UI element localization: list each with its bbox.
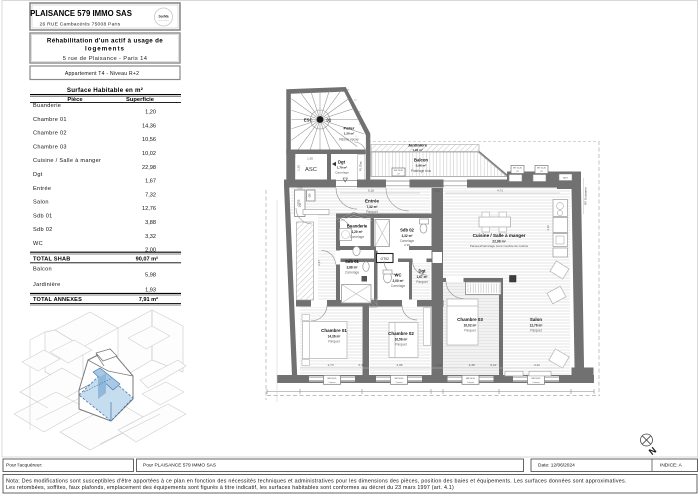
svg-text:3,11: 3,11: [534, 363, 540, 367]
svg-text:10,56: 10,56: [142, 137, 156, 143]
svg-text:Appartement T4 - Niveau R+2: Appartement T4 - Niveau R+2: [65, 71, 139, 77]
svg-text:SeeMa: SeeMa: [158, 15, 168, 19]
svg-text:Pour l'acquéreur:: Pour l'acquéreur:: [6, 463, 42, 469]
svg-text:2,73: 2,73: [328, 363, 334, 367]
svg-text:1,20 m²: 1,20 m²: [352, 230, 363, 234]
svg-text:Chambre 02: Chambre 02: [388, 331, 414, 336]
svg-text:Carrelage: Carrelage: [335, 171, 349, 175]
svg-text:Salon: Salon: [530, 317, 543, 322]
svg-text:12,76 m²: 12,76 m²: [530, 324, 543, 328]
svg-text:logements: logements: [85, 46, 125, 53]
svg-text:4,71: 4,71: [497, 189, 503, 193]
svg-text:Dgt: Dgt: [338, 160, 346, 165]
svg-text:1,67: 1,67: [145, 179, 156, 185]
svg-text:3,47: 3,47: [317, 260, 321, 266]
svg-text:10,56 m²: 10,56 m²: [395, 338, 408, 342]
svg-text:2,00 m²: 2,00 m²: [393, 279, 404, 283]
svg-text:Salon: Salon: [33, 200, 49, 206]
svg-text:RF Existante: RF Existante: [584, 187, 588, 205]
svg-text:Parquet/Carrelage sous meuble: Parquet/Carrelage sous meuble de cuisine: [470, 244, 529, 248]
svg-text:7,91 m²: 7,91 m²: [139, 296, 158, 303]
svg-text:1,93 m²: 1,93 m²: [412, 148, 422, 152]
svg-text:0,31: 0,31: [434, 189, 440, 193]
svg-text:Sdb 02: Sdb 02: [33, 227, 53, 233]
svg-text:14,36: 14,36: [142, 123, 156, 129]
svg-text:Créneau: Créneau: [396, 382, 403, 384]
svg-text:MR 50-95: MR 50-95: [532, 378, 542, 380]
svg-text:5,98: 5,98: [145, 273, 156, 279]
svg-text:0,10: 0,10: [358, 363, 364, 367]
svg-text:Dgt: Dgt: [419, 269, 427, 274]
svg-text:Carrelage: Carrelage: [350, 235, 365, 239]
svg-text:Carrelage: Carrelage: [391, 284, 406, 288]
svg-text:Chambre 01: Chambre 01: [33, 117, 67, 123]
svg-text:0,36: 0,36: [298, 186, 303, 189]
svg-text:90,07 m²: 90,07 m²: [136, 256, 159, 263]
svg-text:01: 01: [327, 117, 332, 122]
svg-text:Les retombées, soffites, faux: Les retombées, soffites, faux plafonds, …: [6, 485, 454, 491]
svg-text:Parquet: Parquet: [395, 343, 407, 347]
svg-text:1,79 m²: 1,79 m²: [337, 166, 347, 170]
svg-text:Parquet: Parquet: [530, 329, 542, 333]
svg-text:MV 15-35: MV 15-35: [513, 168, 523, 170]
svg-text:Créneau: Créneau: [533, 382, 540, 384]
svg-text:5,18: 5,18: [368, 189, 374, 193]
svg-text:WC: WC: [395, 273, 402, 278]
svg-text:1,30: 1,30: [307, 157, 313, 161]
svg-text:MV 15-35: MV 15-35: [394, 170, 404, 172]
svg-text:Réhabilitation d'un actif à us: Réhabilitation d'un actif à usage de: [47, 38, 163, 45]
svg-text:22,98 m²: 22,98 m²: [492, 240, 506, 244]
svg-text:2,36: 2,36: [404, 243, 410, 247]
svg-text:3,32 m²: 3,32 m²: [402, 234, 413, 238]
svg-text:1,20 m²: 1,20 m²: [344, 132, 355, 136]
svg-text:ESC: ESC: [304, 117, 313, 122]
svg-text:3,32: 3,32: [145, 234, 156, 240]
svg-text:Chambre 02: Chambre 02: [33, 131, 67, 137]
svg-text:Entrée: Entrée: [33, 186, 51, 192]
svg-text:Cuisine / Salle à manger: Cuisine / Salle à manger: [33, 158, 101, 164]
svg-text:0,10: 0,10: [490, 363, 496, 367]
svg-text:Date: 12/06/2024: Date: 12/06/2024: [538, 463, 575, 469]
svg-text:26 RUE Cambacérès 75008 Paris: 26 RUE Cambacérès 75008 Paris: [40, 22, 121, 28]
svg-text:MV 15-35: MV 15-35: [537, 168, 547, 170]
svg-text:WC: WC: [33, 241, 43, 247]
svg-text:Parquet: Parquet: [464, 329, 476, 333]
svg-text:2,38: 2,38: [469, 363, 475, 367]
svg-text:Surface Habitable en m²: Surface Habitable en m²: [67, 87, 143, 94]
svg-text:Nota: Des modifications sont s: Nota: Des modifications sont susceptible…: [6, 479, 627, 485]
svg-text:2,96: 2,96: [396, 363, 402, 367]
svg-text:MR 50-95: MR 50-95: [328, 378, 338, 380]
svg-text:Résine époxy: Résine époxy: [339, 138, 359, 142]
svg-text:Parquet: Parquet: [366, 210, 378, 214]
svg-text:12,76: 12,76: [142, 206, 156, 212]
svg-text:4,12: 4,12: [546, 225, 550, 231]
svg-text:Cuisine / Salle à manger: Cuisine / Salle à manger: [473, 233, 526, 238]
svg-text:0,48: 0,48: [436, 363, 442, 367]
svg-text:PL Élec: PL Élec: [358, 161, 363, 171]
svg-text:7,32: 7,32: [145, 192, 156, 198]
svg-text:10,02 m²: 10,02 m²: [464, 324, 477, 328]
svg-text:Sdb 02: Sdb 02: [400, 228, 414, 233]
svg-text:1,20: 1,20: [145, 110, 156, 116]
svg-text:AGG: AGG: [563, 177, 568, 180]
svg-text:PLAISANCE 579 IMMO SAS: PLAISANCE 579 IMMO SAS: [30, 9, 132, 18]
svg-text:ASC: ASC: [305, 167, 317, 173]
svg-text:Buanderie: Buanderie: [33, 103, 61, 109]
svg-text:MR 50-95: MR 50-95: [395, 378, 405, 380]
svg-text:MR 50-95: MR 50-95: [466, 378, 476, 380]
svg-text:1,31: 1,31: [298, 202, 302, 208]
svg-text:Balcon: Balcon: [33, 267, 52, 273]
svg-text:Chambre 03: Chambre 03: [457, 317, 483, 322]
svg-text:Entrée: Entrée: [365, 199, 380, 204]
svg-text:Sdb 01: Sdb 01: [345, 259, 359, 264]
svg-text:10,02: 10,02: [142, 151, 156, 157]
svg-text:3,88 m²: 3,88 m²: [347, 266, 358, 270]
svg-text:GR: GR: [308, 193, 312, 197]
svg-text:Pour PLAISANCE 579 IMMO SAS: Pour PLAISANCE 579 IMMO SAS: [143, 463, 216, 469]
svg-text:Jardinière: Jardinière: [33, 282, 61, 288]
svg-text:Dgt: Dgt: [33, 172, 43, 178]
svg-text:Carrelage: Carrelage: [345, 271, 360, 275]
svg-text:Pièce: Pièce: [67, 97, 83, 103]
svg-text:Créneau: Créneau: [467, 382, 474, 384]
svg-text:INDICE: A: INDICE: A: [660, 463, 683, 469]
svg-text:TOTAL SHAB: TOTAL SHAB: [33, 257, 70, 263]
svg-text:Superficie: Superficie: [126, 97, 155, 103]
svg-text:22,98: 22,98: [142, 165, 156, 171]
svg-text:1,20: 1,20: [297, 165, 301, 171]
svg-text:Parquet: Parquet: [416, 280, 428, 284]
svg-text:Sdb 01: Sdb 01: [33, 213, 53, 219]
svg-text:Balcon: Balcon: [414, 158, 428, 163]
svg-text:Parquet: Parquet: [328, 340, 340, 344]
svg-text:Palier: Palier: [344, 126, 355, 131]
svg-text:14,36 m²: 14,36 m²: [328, 335, 341, 339]
svg-text:5,98 m²: 5,98 m²: [416, 164, 427, 168]
svg-text:GT02: GT02: [380, 257, 389, 261]
svg-text:Créneau: Créneau: [329, 382, 336, 384]
svg-text:Buanderie: Buanderie: [347, 224, 368, 229]
svg-text:Chambre 01: Chambre 01: [321, 328, 347, 333]
svg-text:TOTAL ANNEXES: TOTAL ANNEXES: [33, 297, 82, 303]
svg-text:Platelage bois: Platelage bois: [411, 169, 431, 173]
svg-text:Chambre 03: Chambre 03: [33, 144, 67, 150]
svg-text:7,32 m²: 7,32 m²: [367, 205, 378, 209]
svg-text:5 rue de Plaisance - Paris 14: 5 rue de Plaisance - Paris 14: [63, 56, 148, 62]
svg-text:1,67 m²: 1,67 m²: [417, 275, 428, 279]
svg-text:Jardinière: Jardinière: [408, 143, 428, 148]
svg-text:3,88: 3,88: [145, 220, 156, 226]
svg-text:1,93: 1,93: [145, 288, 156, 294]
